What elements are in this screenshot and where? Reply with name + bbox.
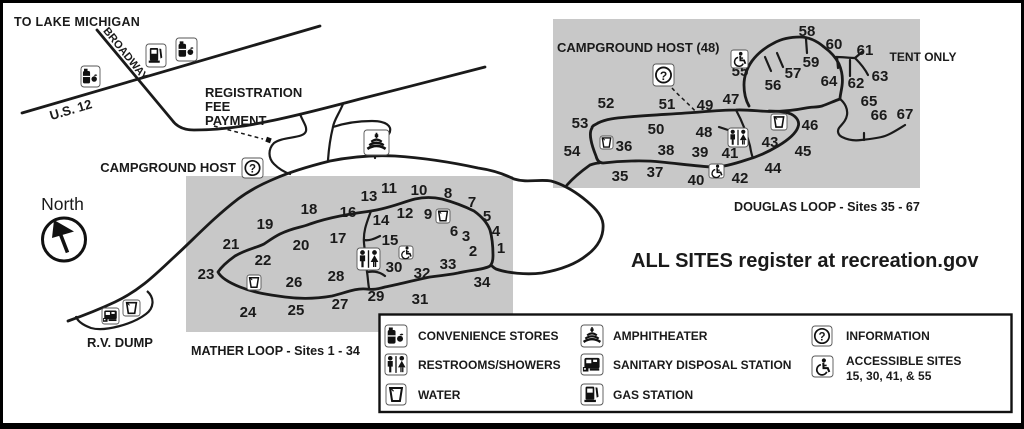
svg-text:5: 5 <box>483 208 491 225</box>
svg-text:26: 26 <box>286 274 303 291</box>
svg-text:53: 53 <box>572 115 589 132</box>
svg-text:3: 3 <box>462 228 470 245</box>
svg-text:25: 25 <box>288 302 305 319</box>
svg-text:40: 40 <box>688 172 705 189</box>
svg-text:63: 63 <box>872 68 889 85</box>
svg-text:57: 57 <box>785 65 802 82</box>
svg-text:MATHER LOOP - Sites 1 - 34: MATHER LOOP - Sites 1 - 34 <box>191 344 360 358</box>
svg-text:15, 30, 41, & 55: 15, 30, 41, & 55 <box>846 369 932 383</box>
svg-text:15: 15 <box>382 232 399 249</box>
svg-text:GAS STATION: GAS STATION <box>613 388 693 402</box>
svg-text:45: 45 <box>795 143 812 160</box>
svg-text:CAMPGROUND HOST (48): CAMPGROUND HOST (48) <box>557 40 720 55</box>
svg-text:44: 44 <box>765 160 782 177</box>
svg-text:19: 19 <box>257 216 274 233</box>
svg-text:12: 12 <box>397 205 414 222</box>
svg-text:54: 54 <box>564 143 581 160</box>
svg-text:8: 8 <box>444 185 452 202</box>
svg-text:51: 51 <box>659 96 676 113</box>
svg-text:AMPHITHEATER: AMPHITHEATER <box>613 329 708 343</box>
svg-text:REGISTRATION: REGISTRATION <box>205 85 302 100</box>
svg-text:CONVENIENCE STORES: CONVENIENCE STORES <box>418 329 558 343</box>
svg-text:62: 62 <box>848 75 865 92</box>
svg-text:ALL SITES register at recreati: ALL SITES register at recreation.gov <box>631 250 979 272</box>
svg-text:16: 16 <box>340 204 357 221</box>
svg-text:SANITARY DISPOSAL STATION: SANITARY DISPOSAL STATION <box>613 358 791 372</box>
svg-text:46: 46 <box>802 117 819 134</box>
svg-text:4: 4 <box>492 223 501 240</box>
svg-text:43: 43 <box>762 134 779 151</box>
svg-text:36: 36 <box>616 138 633 155</box>
svg-text:10: 10 <box>411 182 428 199</box>
svg-text:38: 38 <box>658 142 675 159</box>
svg-text:59: 59 <box>803 54 820 71</box>
svg-text:27: 27 <box>332 296 349 313</box>
svg-text:42: 42 <box>732 170 749 187</box>
svg-text:29: 29 <box>368 288 385 305</box>
svg-text:47: 47 <box>723 91 740 108</box>
svg-text:1: 1 <box>497 240 505 257</box>
svg-text:31: 31 <box>412 291 429 308</box>
svg-text:32: 32 <box>414 265 431 282</box>
svg-text:50: 50 <box>648 121 665 138</box>
svg-text:61: 61 <box>857 42 874 59</box>
svg-text:DOUGLAS LOOP - Sites 35 - 67: DOUGLAS LOOP - Sites 35 - 67 <box>734 200 920 214</box>
svg-text:FEE: FEE <box>205 99 231 114</box>
svg-text:64: 64 <box>821 73 838 90</box>
svg-text:R.V. DUMP: R.V. DUMP <box>87 335 153 350</box>
svg-text:7: 7 <box>468 194 476 211</box>
svg-text:34: 34 <box>474 274 491 291</box>
svg-text:6: 6 <box>450 223 458 240</box>
svg-text:13: 13 <box>361 188 378 205</box>
svg-text:56: 56 <box>765 77 782 94</box>
svg-text:66: 66 <box>871 107 888 124</box>
svg-text:24: 24 <box>240 304 257 321</box>
svg-text:49: 49 <box>697 97 714 114</box>
svg-text:18: 18 <box>301 201 318 218</box>
svg-text:37: 37 <box>647 164 664 181</box>
svg-text:TO LAKE MICHIGAN: TO LAKE MICHIGAN <box>14 15 140 29</box>
svg-text:ACCESSIBLE SITES: ACCESSIBLE SITES <box>846 354 961 368</box>
svg-text:PAYMENT: PAYMENT <box>205 113 266 128</box>
svg-text:67: 67 <box>897 106 914 123</box>
svg-text:INFORMATION: INFORMATION <box>846 329 930 343</box>
svg-text:9: 9 <box>424 206 432 223</box>
svg-text:North: North <box>41 194 84 214</box>
svg-text:39: 39 <box>692 144 709 161</box>
svg-text:23: 23 <box>198 266 215 283</box>
svg-text:41: 41 <box>722 145 739 162</box>
svg-text:21: 21 <box>223 236 240 253</box>
svg-text:RESTROOMS/SHOWERS: RESTROOMS/SHOWERS <box>418 358 561 372</box>
svg-text:CAMPGROUND HOST: CAMPGROUND HOST <box>100 160 236 175</box>
svg-text:TENT ONLY: TENT ONLY <box>890 50 957 64</box>
svg-text:48: 48 <box>696 124 713 141</box>
svg-text:22: 22 <box>255 252 272 269</box>
svg-text:35: 35 <box>612 168 629 185</box>
svg-text:WATER: WATER <box>418 388 461 402</box>
svg-text:30: 30 <box>386 259 403 276</box>
svg-text:20: 20 <box>293 237 310 254</box>
svg-text:2: 2 <box>469 243 477 260</box>
svg-text:58: 58 <box>799 23 816 40</box>
svg-text:52: 52 <box>598 95 615 112</box>
svg-text:60: 60 <box>826 36 843 53</box>
svg-text:28: 28 <box>328 268 345 285</box>
svg-text:14: 14 <box>373 212 390 229</box>
svg-text:33: 33 <box>440 256 457 273</box>
svg-text:11: 11 <box>381 180 397 197</box>
svg-text:17: 17 <box>330 230 347 247</box>
